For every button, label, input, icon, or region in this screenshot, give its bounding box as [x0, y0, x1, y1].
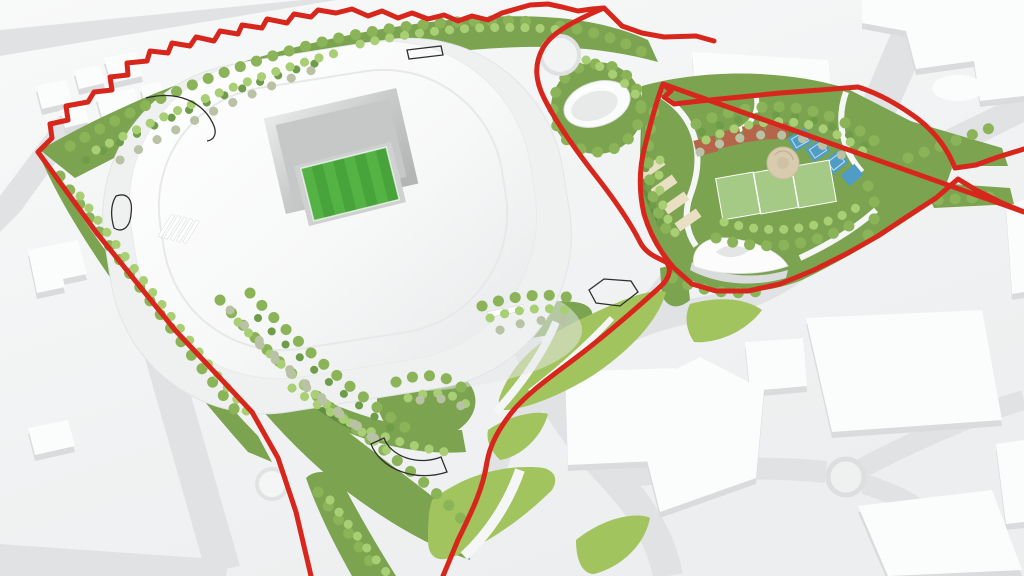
masterplan-rendering	[0, 0, 1024, 576]
masterplan-svg	[0, 0, 1024, 576]
roundabout-southeast	[828, 459, 864, 495]
central-plaza	[767, 147, 799, 179]
